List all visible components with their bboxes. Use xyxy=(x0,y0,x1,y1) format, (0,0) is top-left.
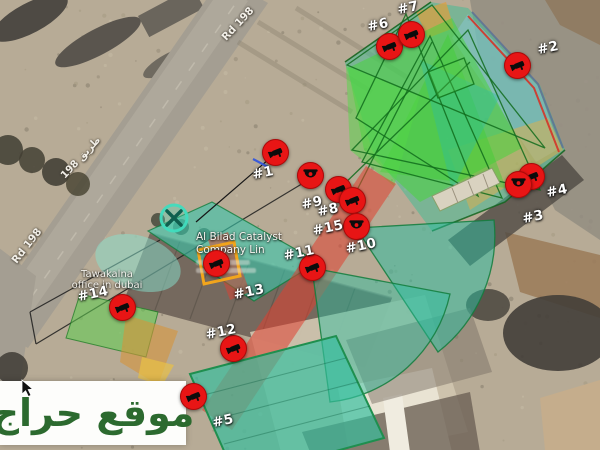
camera-marker-14[interactable] xyxy=(109,294,136,321)
camera-marker-8[interactable] xyxy=(339,187,366,214)
mouse-cursor xyxy=(21,379,35,399)
camera-marker-1[interactable] xyxy=(262,139,289,166)
cctv-bullet-icon xyxy=(508,56,527,75)
camera-marker-11[interactable] xyxy=(203,250,230,277)
camera-marker-15[interactable] xyxy=(343,213,370,240)
cctv-bullet-icon xyxy=(207,254,226,273)
cctv-bullet-icon xyxy=(343,191,362,210)
camera-marker-3[interactable] xyxy=(505,171,532,198)
cctv-bullet-icon xyxy=(266,143,285,162)
camera-markers-layer xyxy=(0,0,600,450)
camera-marker-7[interactable] xyxy=(398,21,425,48)
cctv-bullet-icon xyxy=(184,387,203,406)
cctv-bullet-icon xyxy=(224,339,243,358)
cctv-bullet-icon xyxy=(303,258,322,277)
cctv-dome-icon xyxy=(301,166,320,185)
cctv-bullet-icon xyxy=(380,37,399,56)
cctv-dome-icon xyxy=(509,175,528,194)
cctv-bullet-icon xyxy=(113,298,132,317)
cctv-dome-icon xyxy=(347,217,366,236)
camera-marker-10[interactable] xyxy=(299,254,326,281)
cctv-bullet-icon xyxy=(402,25,421,44)
camera-marker-12[interactable] xyxy=(220,335,247,362)
satellite-map[interactable]: Rd 198 طريق 198 Rd 198 Tawakalna office … xyxy=(0,0,600,450)
camera-marker-2[interactable] xyxy=(504,52,531,79)
camera-marker-13[interactable] xyxy=(297,162,324,189)
camera-marker-5[interactable] xyxy=(180,383,207,410)
